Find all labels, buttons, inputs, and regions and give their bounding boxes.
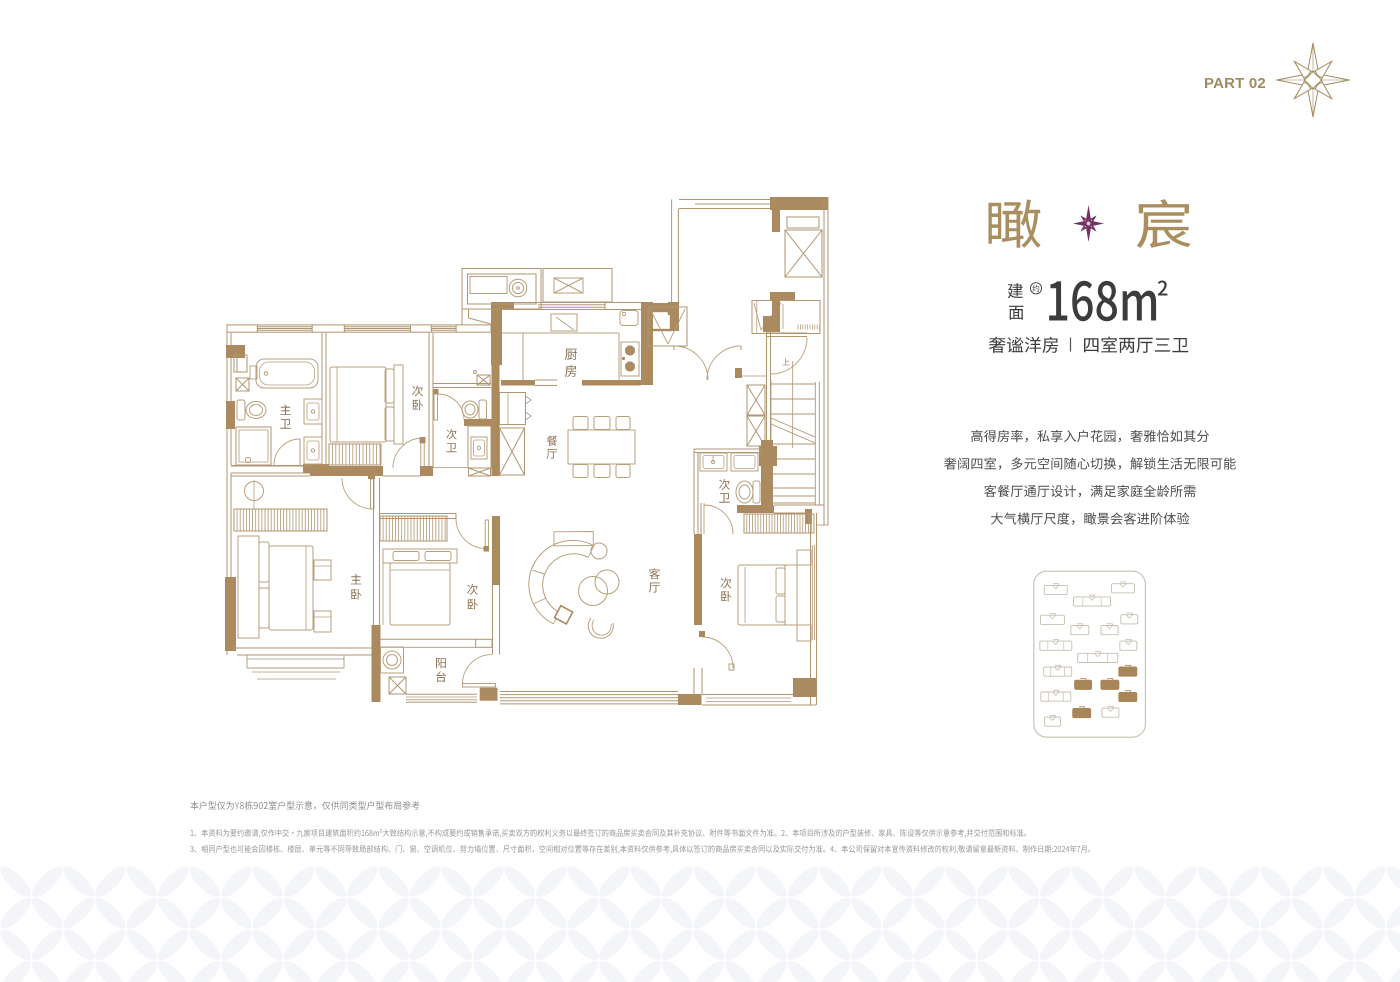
svg-text:PART 02: PART 02	[1204, 75, 1266, 92]
